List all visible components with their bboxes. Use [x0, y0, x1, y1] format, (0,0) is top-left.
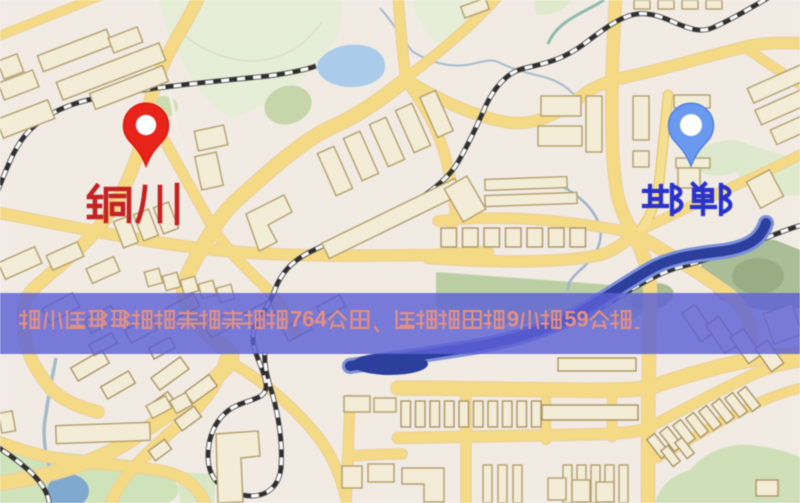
svg-text:764: 764	[290, 307, 327, 332]
svg-text:59: 59	[564, 307, 588, 332]
svg-text:9: 9	[507, 307, 519, 332]
